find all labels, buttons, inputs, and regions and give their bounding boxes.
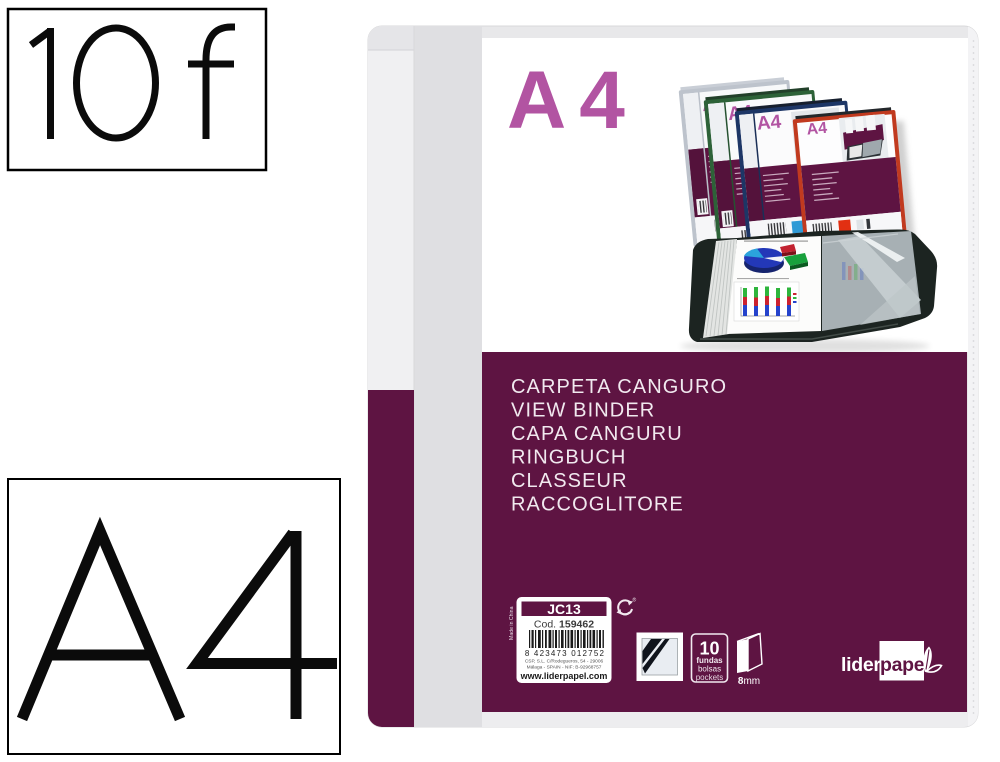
svg-text:RINGBUCH: RINGBUCH (511, 447, 626, 469)
svg-text:CARPETA CANGURO: CARPETA CANGURO (511, 376, 727, 398)
svg-text:pape: pape (880, 654, 925, 676)
svg-text:CLASSEUR: CLASSEUR (511, 470, 628, 492)
svg-text:RACCOGLITORE: RACCOGLITORE (511, 494, 684, 516)
svg-text:®: ® (633, 597, 637, 604)
svg-text:www.liderpapel.com: www.liderpapel.com (520, 671, 608, 681)
svg-text:VIEW BINDER: VIEW BINDER (511, 400, 655, 422)
svg-text:8mm: 8mm (738, 676, 760, 687)
svg-text:CSP, S.L. C/Rodegueros, 54 - 2: CSP, S.L. C/Rodegueros, 54 - 29006 (525, 659, 604, 665)
svg-text:pockets: pockets (696, 673, 724, 682)
svg-text:CAPA CANGURU: CAPA CANGURU (511, 423, 683, 445)
svg-text:A4: A4 (806, 120, 828, 139)
svg-text:Cod. 159462: Cod. 159462 (534, 619, 594, 631)
svg-text:A4: A4 (507, 55, 638, 146)
svg-text:8 423473 012752: 8 423473 012752 (525, 649, 605, 658)
svg-text:Málaga - SPAIN - NIF: B-929687: Málaga - SPAIN - NIF: B-92968757 (527, 665, 602, 671)
svg-text:Made in China: Made in China (509, 606, 515, 640)
svg-text:JC13: JC13 (547, 601, 581, 617)
svg-text:A4: A4 (756, 111, 783, 134)
svg-text:lider: lider (841, 654, 881, 676)
